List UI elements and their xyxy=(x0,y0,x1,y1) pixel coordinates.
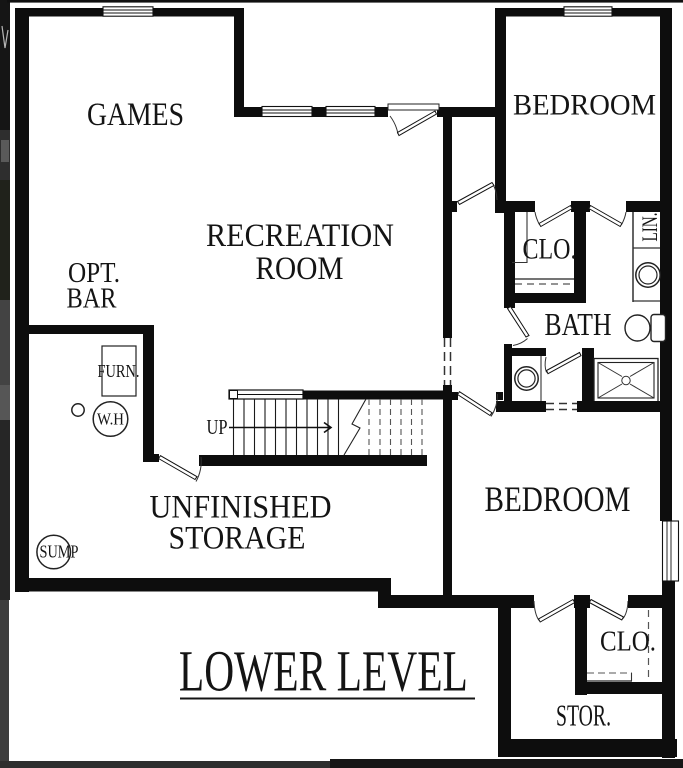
svg-text:STOR.: STOR. xyxy=(556,698,611,733)
svg-text:LIN.: LIN. xyxy=(637,213,662,242)
svg-text:STORAGE: STORAGE xyxy=(169,521,306,557)
svg-text:CLO.: CLO. xyxy=(600,626,656,658)
svg-text:LOWER LEVEL: LOWER LEVEL xyxy=(179,639,468,704)
svg-text:BEDROOM: BEDROOM xyxy=(485,479,631,519)
svg-text:CLO.: CLO. xyxy=(523,233,577,266)
svg-text:SUMP: SUMP xyxy=(40,542,79,562)
svg-text:GAMES: GAMES xyxy=(87,97,184,133)
svg-text:W.H: W.H xyxy=(97,410,124,429)
svg-text:BATH: BATH xyxy=(545,306,612,342)
svg-text:BEDROOM: BEDROOM xyxy=(513,89,656,122)
svg-text:UP: UP xyxy=(207,415,228,439)
svg-text:RECREATION: RECREATION xyxy=(206,218,394,254)
svg-text:ROOM: ROOM xyxy=(256,251,344,287)
svg-text:BAR: BAR xyxy=(67,283,118,315)
svg-text:FURN.: FURN. xyxy=(98,361,140,381)
